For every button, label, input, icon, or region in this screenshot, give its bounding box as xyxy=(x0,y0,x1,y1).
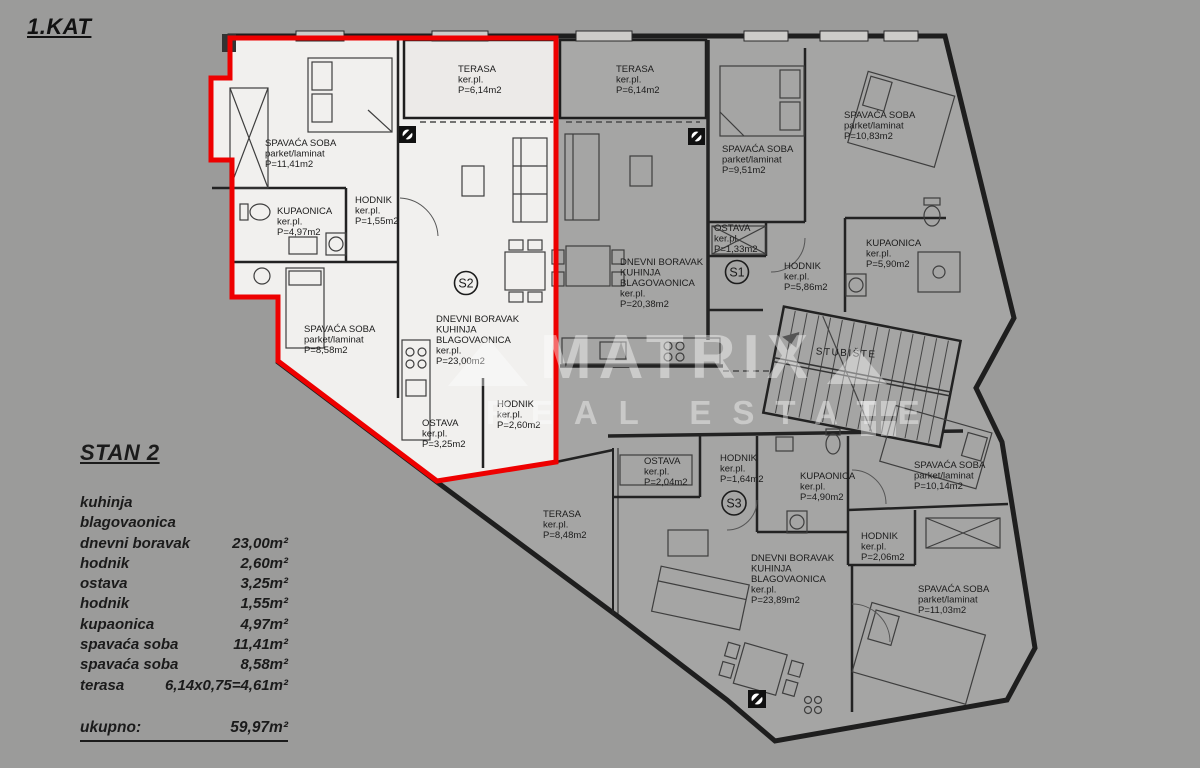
summary-row-value: 3,25m² xyxy=(240,574,288,594)
svg-text:OSTAVA: OSTAVA xyxy=(422,418,459,429)
svg-text:ker.pl.: ker.pl. xyxy=(784,272,809,283)
summary-row-label: kupaonica xyxy=(80,615,154,635)
svg-text:SPAVAĆA SOBA: SPAVAĆA SOBA xyxy=(265,138,337,149)
svg-text:ker.pl.: ker.pl. xyxy=(458,75,483,86)
svg-text:BLAGOVAONICA: BLAGOVAONICA xyxy=(436,335,511,346)
summary-row: dnevni boravak 23,00m² xyxy=(80,534,288,554)
svg-text:TERASA: TERASA xyxy=(616,64,655,75)
floor-plan-page: S2 S1 S3 STUBIŠTE TERASA ker.pl. P=6,14m… xyxy=(0,0,1200,768)
svg-text:ker.pl.: ker.pl. xyxy=(543,520,568,531)
svg-text:P=5,86m2: P=5,86m2 xyxy=(784,282,828,293)
svg-text:HODNIK: HODNIK xyxy=(720,453,758,464)
svg-text:SPAVAĆA SOBA: SPAVAĆA SOBA xyxy=(722,144,794,155)
svg-text:KUHINJA: KUHINJA xyxy=(620,268,661,279)
svg-text:ker.pl.: ker.pl. xyxy=(620,289,645,300)
summary-row-value: 2,60m² xyxy=(240,554,288,574)
svg-text:P=10,83m2: P=10,83m2 xyxy=(844,131,893,142)
svg-text:ker.pl.: ker.pl. xyxy=(720,464,745,475)
svg-text:HODNIK: HODNIK xyxy=(784,261,822,272)
summary-row-label: spavaća soba xyxy=(80,635,178,655)
svg-text:parket/laminat: parket/laminat xyxy=(265,149,325,160)
summary-row-value: 4,97m² xyxy=(240,615,288,635)
svg-text:HODNIK: HODNIK xyxy=(497,399,535,410)
summary-row-label: ostava xyxy=(80,574,128,594)
svg-text:parket/laminat: parket/laminat xyxy=(914,471,974,482)
svg-text:P=9,51m2: P=9,51m2 xyxy=(722,165,766,176)
summary-total-row: ukupno: 59,97m² xyxy=(80,718,288,742)
summary-total-label: ukupno: xyxy=(80,718,141,738)
summary-row: blagovaonica xyxy=(80,513,288,533)
svg-text:P=8,58m2: P=8,58m2 xyxy=(304,345,348,356)
summary-row-label: dnevni boravak xyxy=(80,534,190,554)
svg-text:ker.pl.: ker.pl. xyxy=(714,234,739,245)
summary-row-value: 1,55m² xyxy=(240,594,288,614)
summary-row-label: spavaća soba xyxy=(80,655,178,675)
svg-text:ker.pl.: ker.pl. xyxy=(422,429,447,440)
svg-text:ker.pl.: ker.pl. xyxy=(800,482,825,493)
svg-text:TERASA: TERASA xyxy=(458,64,497,75)
svg-text:P=2,60m2: P=2,60m2 xyxy=(497,420,541,431)
svg-text:BLAGOVAONICA: BLAGOVAONICA xyxy=(620,278,695,289)
svg-text:S3: S3 xyxy=(726,497,741,511)
svg-text:OSTAVA: OSTAVA xyxy=(714,223,751,234)
svg-text:P=10,14m2: P=10,14m2 xyxy=(914,481,963,492)
svg-text:P=11,41m2: P=11,41m2 xyxy=(265,159,313,170)
page-title: 1.KAT xyxy=(27,14,91,40)
svg-text:parket/laminat: parket/laminat xyxy=(304,335,364,346)
svg-text:P=5,90m2: P=5,90m2 xyxy=(866,259,910,270)
svg-text:ker.pl.: ker.pl. xyxy=(497,410,522,421)
summary-row-value: 8,58m² xyxy=(240,655,288,675)
svg-text:KUPAONICA: KUPAONICA xyxy=(800,471,856,482)
svg-text:ker.pl.: ker.pl. xyxy=(277,217,302,228)
svg-text:P=1,64m2: P=1,64m2 xyxy=(720,474,764,485)
summary-row-value: 23,00m² xyxy=(232,534,288,554)
summary-row: kuhinja xyxy=(80,493,288,513)
svg-text:P=2,04m2: P=2,04m2 xyxy=(644,477,688,488)
svg-text:SPAVAĆA SOBA: SPAVAĆA SOBA xyxy=(914,460,986,471)
svg-text:DNEVNI BORAVAK: DNEVNI BORAVAK xyxy=(751,553,835,564)
summary-row-label: terasa xyxy=(80,676,124,696)
svg-text:SPAVAĆA SOBA: SPAVAĆA SOBA xyxy=(918,584,990,595)
svg-text:P=1,33m2: P=1,33m2 xyxy=(714,244,758,255)
svg-text:P=20,38m2: P=20,38m2 xyxy=(620,299,669,310)
svg-text:SPAVAĆA SOBA: SPAVAĆA SOBA xyxy=(304,324,376,335)
summary-row-value: 6,14x0,75=4,61m² xyxy=(165,676,288,696)
svg-text:P=23,00m2: P=23,00m2 xyxy=(436,356,485,367)
summary-row: spavaća soba 11,41m² xyxy=(80,635,288,655)
svg-text:OSTAVA: OSTAVA xyxy=(644,456,681,467)
svg-text:S2: S2 xyxy=(458,277,473,291)
summary-row: kupaonica 4,97m² xyxy=(80,615,288,635)
svg-text:BLAGOVAONICA: BLAGOVAONICA xyxy=(751,574,826,585)
svg-text:P=1,55m2: P=1,55m2 xyxy=(355,216,399,227)
summary-row: terasa 6,14x0,75=4,61m² xyxy=(80,676,288,696)
summary-row: hodnik 2,60m² xyxy=(80,554,288,574)
svg-text:parket/laminat: parket/laminat xyxy=(722,155,782,166)
svg-text:ker.pl.: ker.pl. xyxy=(644,467,669,478)
svg-text:P=4,97m2: P=4,97m2 xyxy=(277,227,321,238)
svg-text:P=23,89m2: P=23,89m2 xyxy=(751,595,800,606)
svg-text:parket/laminat: parket/laminat xyxy=(844,121,904,132)
svg-text:DNEVNI BORAVAK: DNEVNI BORAVAK xyxy=(436,314,520,325)
svg-text:KUPAONICA: KUPAONICA xyxy=(277,206,333,217)
svg-text:P=8,48m2: P=8,48m2 xyxy=(543,530,587,541)
svg-text:P=4,90m2: P=4,90m2 xyxy=(800,492,844,503)
svg-text:ker.pl.: ker.pl. xyxy=(436,346,461,357)
svg-text:KUHINJA: KUHINJA xyxy=(751,564,792,575)
svg-text:ker.pl.: ker.pl. xyxy=(751,585,776,596)
summary-row-value: 11,41m² xyxy=(233,635,288,655)
svg-text:KUPAONICA: KUPAONICA xyxy=(866,238,922,249)
summary-row: spavaća soba 8,58m² xyxy=(80,655,288,675)
summary-row-label: hodnik xyxy=(80,594,129,614)
svg-text:SPAVAĆA SOBA: SPAVAĆA SOBA xyxy=(844,110,916,121)
summary-row: hodnik 1,55m² xyxy=(80,594,288,614)
svg-text:ker.pl.: ker.pl. xyxy=(866,249,891,260)
summary-total-value: 59,97m² xyxy=(230,718,288,738)
apartment-summary-panel: STAN 2 kuhinja blagovaonica dnevni borav… xyxy=(80,440,288,742)
svg-text:P=2,06m2: P=2,06m2 xyxy=(861,552,905,563)
svg-text:ker.pl.: ker.pl. xyxy=(861,542,886,553)
summary-row: ostava 3,25m² xyxy=(80,574,288,594)
svg-text:P=6,14m2: P=6,14m2 xyxy=(616,85,660,96)
svg-text:HODNIK: HODNIK xyxy=(355,195,393,206)
svg-text:P=11,03m2: P=11,03m2 xyxy=(918,605,966,616)
summary-row-label: kuhinja xyxy=(80,493,133,513)
svg-text:S1: S1 xyxy=(729,266,744,280)
svg-text:HODNIK: HODNIK xyxy=(861,531,899,542)
svg-text:KUHINJA: KUHINJA xyxy=(436,325,477,336)
summary-row-label: hodnik xyxy=(80,554,129,574)
svg-text:ker.pl.: ker.pl. xyxy=(355,206,380,217)
summary-heading: STAN 2 xyxy=(80,440,288,466)
svg-text:P=6,14m2: P=6,14m2 xyxy=(458,85,502,96)
svg-text:DNEVNI BORAVAK: DNEVNI BORAVAK xyxy=(620,257,704,268)
svg-text:parket/laminat: parket/laminat xyxy=(918,595,978,606)
svg-text:P=3,25m2: P=3,25m2 xyxy=(422,439,466,450)
svg-text:TERASA: TERASA xyxy=(543,509,582,520)
svg-text:ker.pl.: ker.pl. xyxy=(616,75,641,86)
summary-row-label: blagovaonica xyxy=(80,513,176,533)
